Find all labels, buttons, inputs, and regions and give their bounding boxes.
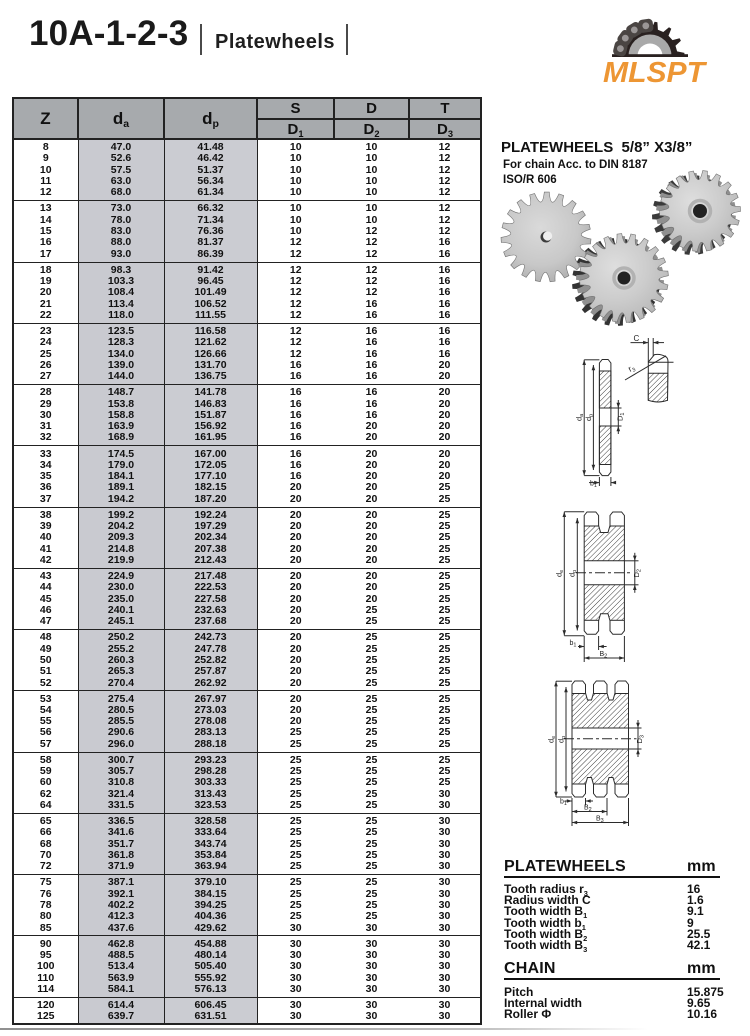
svg-text:D3: D3 (635, 735, 646, 743)
svg-text:b1: b1 (560, 799, 567, 808)
svg-text:dp: dp (584, 414, 595, 421)
svg-text:C: C (634, 334, 640, 343)
svg-text:de: de (555, 570, 566, 577)
svg-text:r3: r3 (626, 362, 637, 375)
svg-text:de: de (547, 736, 558, 743)
svg-text:MLSPT: MLSPT (603, 57, 707, 88)
svg-text:dp: dp (568, 570, 579, 577)
svg-text:dp: dp (557, 736, 568, 743)
svg-text:D2: D2 (632, 569, 643, 577)
svg-text:b1: b1 (570, 640, 577, 649)
svg-text:D1: D1 (616, 413, 627, 421)
